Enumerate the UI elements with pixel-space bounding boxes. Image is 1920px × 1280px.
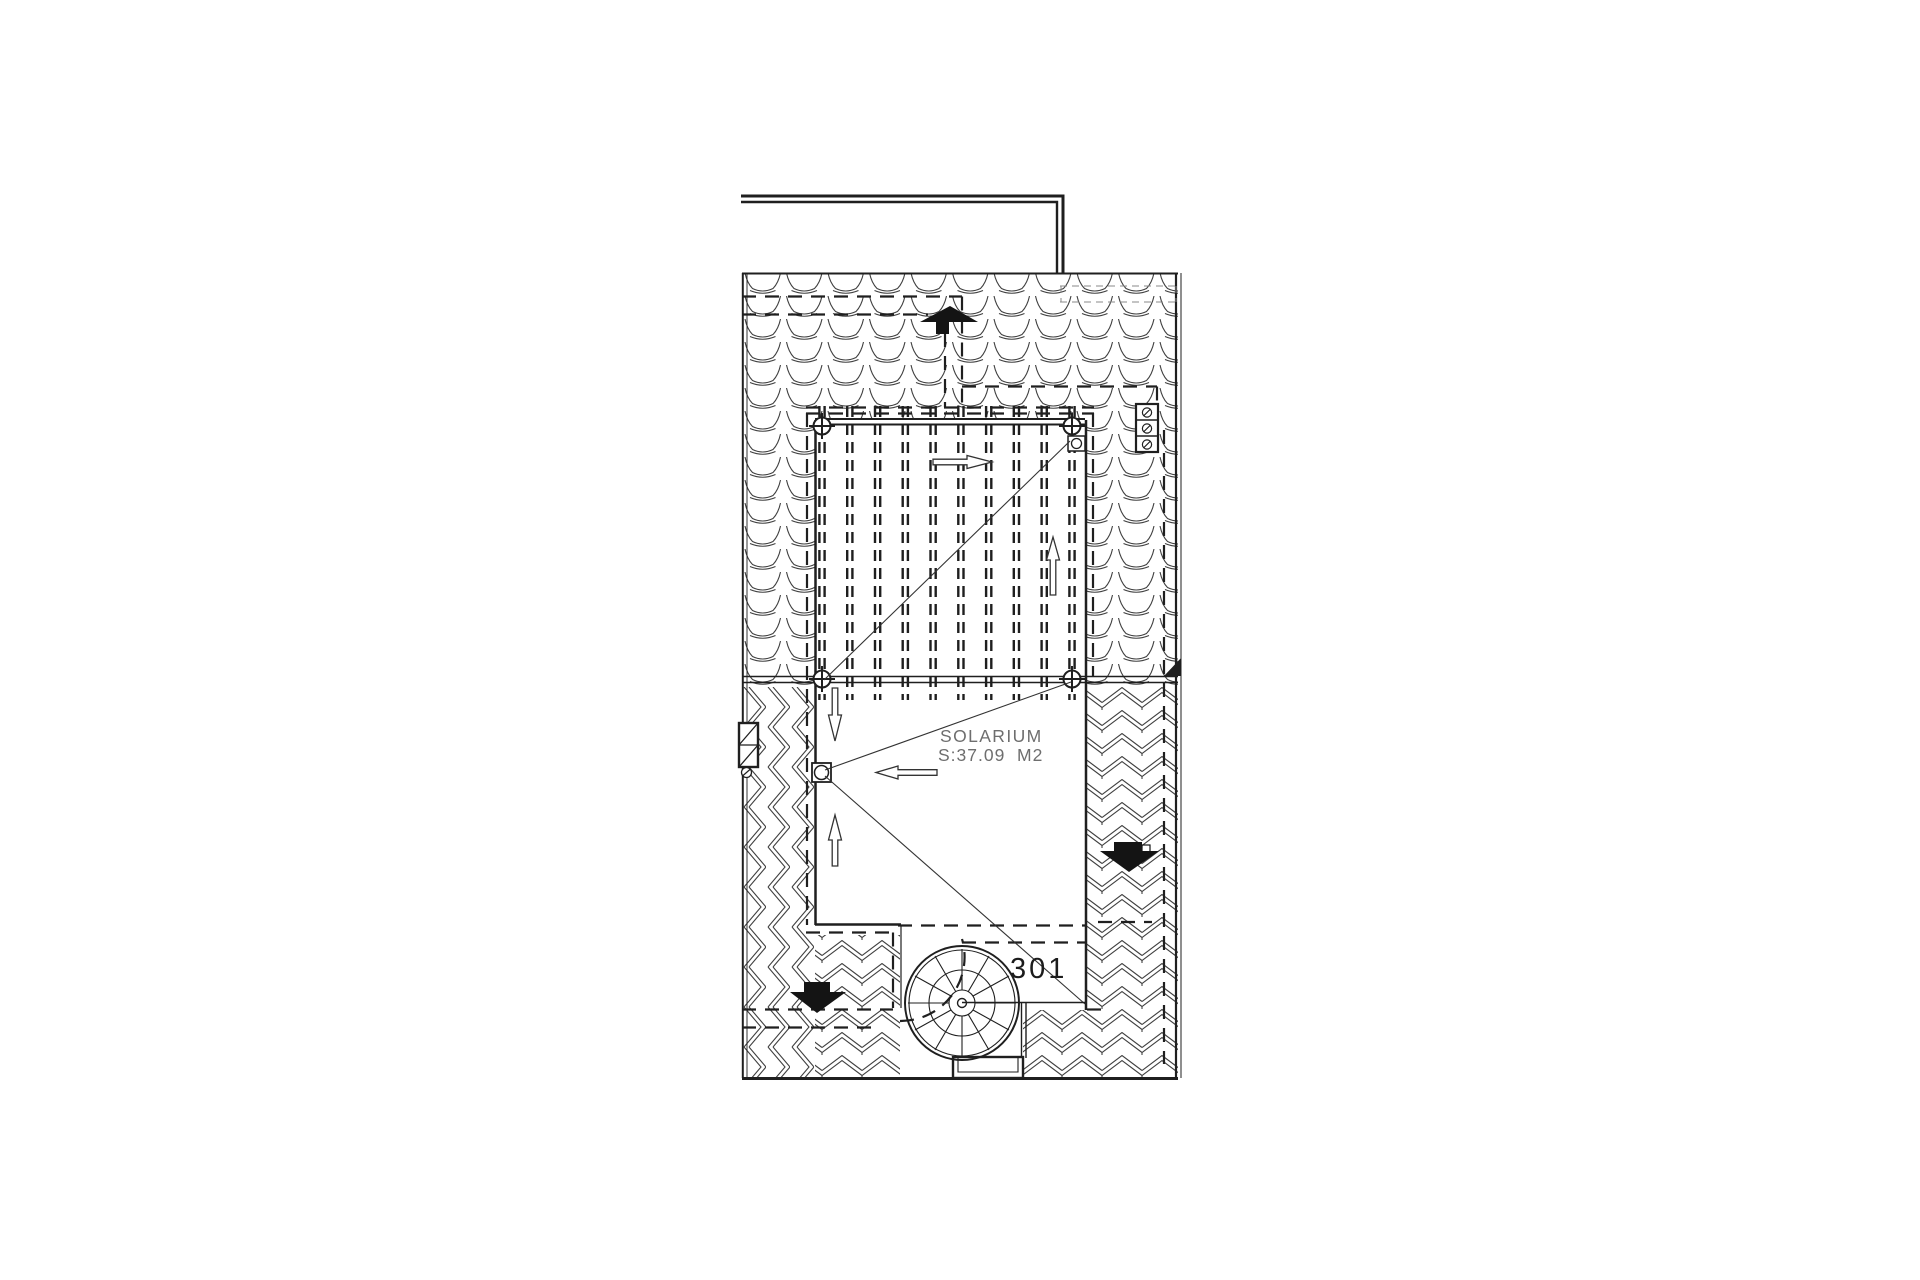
floor-plan-page: SOLARIUM S:37.09 M2 301	[0, 0, 1920, 1280]
pergola-slats	[819, 406, 1074, 700]
room-label: SOLARIUM	[940, 726, 1043, 746]
roof-tiles-right-strip-lower	[1085, 687, 1178, 1078]
pergola-columns	[809, 413, 1085, 692]
arrow-up-icon	[829, 815, 842, 866]
column-symbol-bottom-right	[1059, 666, 1085, 692]
open-arrows	[829, 456, 1060, 867]
parapet-wall-outer	[741, 196, 1063, 273]
pergola	[809, 406, 1085, 700]
parapet-wall	[741, 196, 1063, 273]
plan-drawing: SOLARIUM S:37.09 M2 301	[0, 0, 1920, 1280]
pergola-beam-top	[815, 419, 1085, 425]
unit-number-label: 301	[1010, 953, 1067, 985]
slope-diagonals	[824, 441, 1085, 1004]
roof-tiles-left-strip-upper	[742, 420, 815, 687]
arrow-down-icon	[829, 688, 842, 741]
arrow-up-pergola-icon	[1047, 537, 1060, 595]
diagonal-pergola	[824, 441, 1070, 680]
roof-drain-box	[1136, 404, 1158, 452]
area-label: S:37.09 M2	[938, 745, 1043, 765]
solarium-walls	[815, 420, 1086, 1010]
arrow-left-icon	[876, 766, 937, 779]
parapet-wall-inner	[741, 202, 1057, 273]
roof-tiles-bottom-left-block	[815, 935, 900, 1078]
roof-tiles-bottom-center-block	[1023, 1010, 1085, 1078]
corner-anchor-plate	[1068, 436, 1085, 451]
roof-tiles-top-band	[742, 273, 1178, 420]
